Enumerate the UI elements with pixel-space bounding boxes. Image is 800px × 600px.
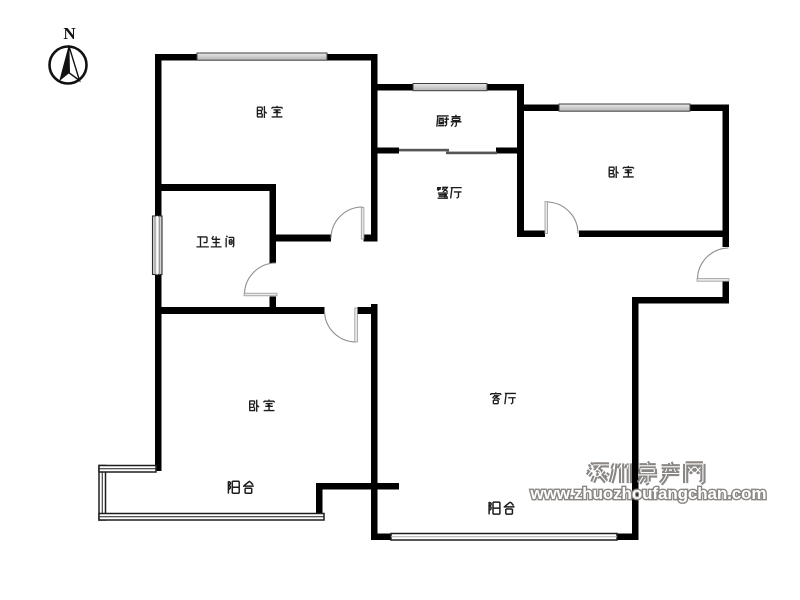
svg-text:www.zhuozhoufangchan.com: www.zhuozhoufangchan.com bbox=[530, 484, 767, 503]
svg-text:N: N bbox=[63, 24, 76, 43]
